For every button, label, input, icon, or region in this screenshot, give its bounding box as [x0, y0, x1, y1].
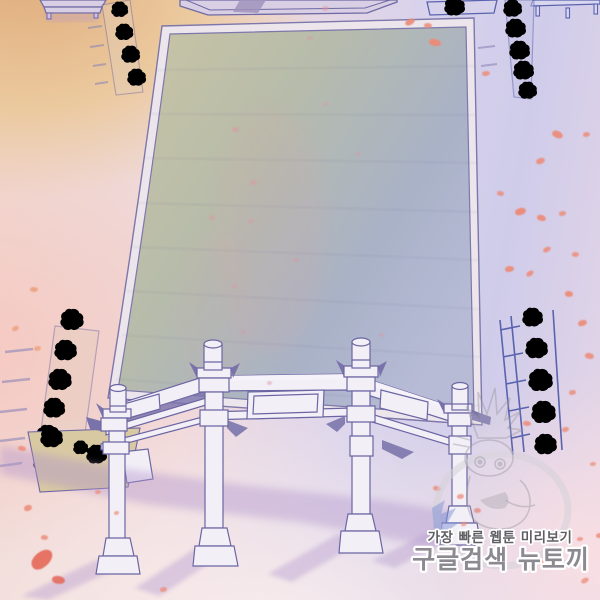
- planter-box-top-right: [427, 0, 497, 15]
- scene-art: .lg path:not(.d){fill:#a6a98e;stroke:#56…: [0, 0, 600, 600]
- bush-shadow-dashes: [478, 46, 497, 66]
- tree-planter-right: [500, 308, 562, 455]
- gate-pillar-2: [189, 340, 240, 566]
- webtoon-panel: .lg path:not(.d){fill:#a6a98e;stroke:#56…: [0, 0, 600, 600]
- gate-plaque-center: [247, 390, 324, 419]
- tree-planter-top-right: [478, 0, 537, 99]
- courtyard: [108, 18, 482, 425]
- stone-platform: [180, 0, 397, 15]
- table-top-right: [531, 0, 600, 18]
- bush-shadow-dashes: [88, 26, 108, 84]
